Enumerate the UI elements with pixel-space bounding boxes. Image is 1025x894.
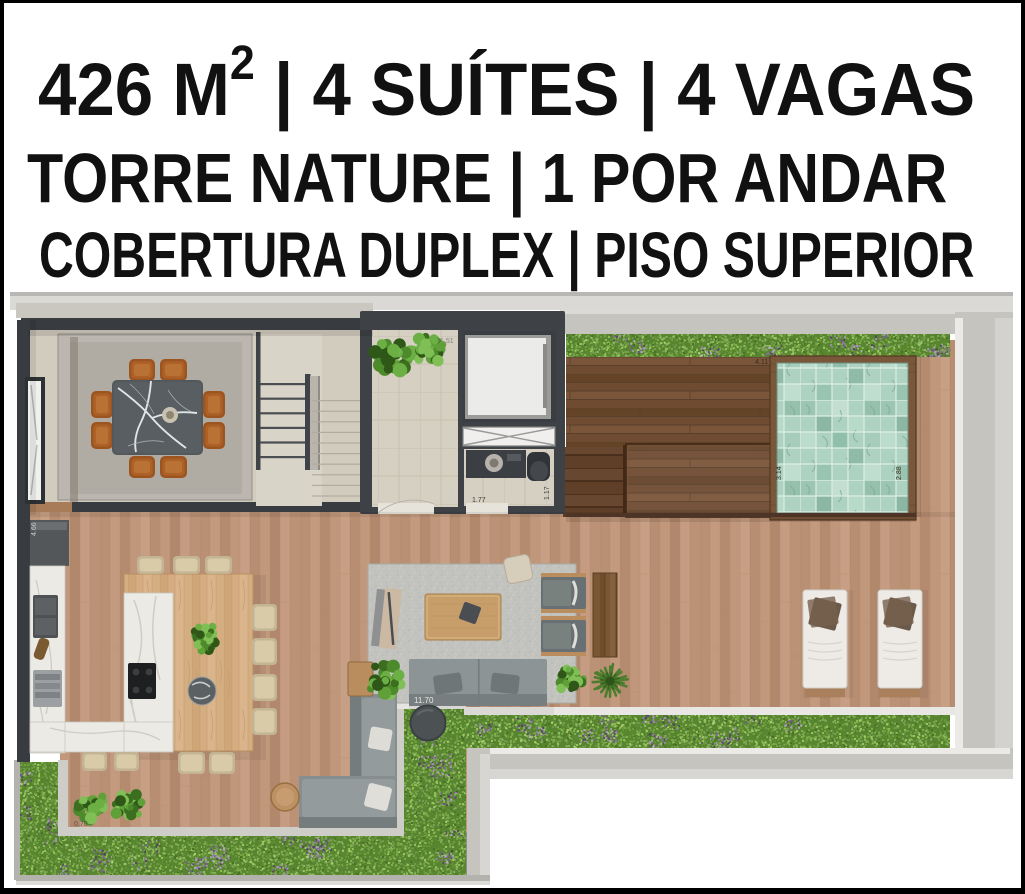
- svg-text:11.70: 11.70: [414, 696, 434, 705]
- svg-text:1.17: 1.17: [544, 486, 551, 500]
- svg-text:3.14: 3.14: [776, 466, 783, 480]
- svg-text:4.11: 4.11: [755, 359, 768, 366]
- svg-text:1.51: 1.51: [440, 338, 454, 345]
- svg-text:2.88: 2.88: [896, 466, 903, 480]
- svg-text:0.96: 0.96: [938, 347, 952, 354]
- svg-text:0.70: 0.70: [74, 821, 88, 828]
- svg-text:4.66: 4.66: [31, 522, 38, 536]
- svg-text:1.77: 1.77: [472, 497, 486, 504]
- svg-text:1.48: 1.48: [450, 486, 457, 500]
